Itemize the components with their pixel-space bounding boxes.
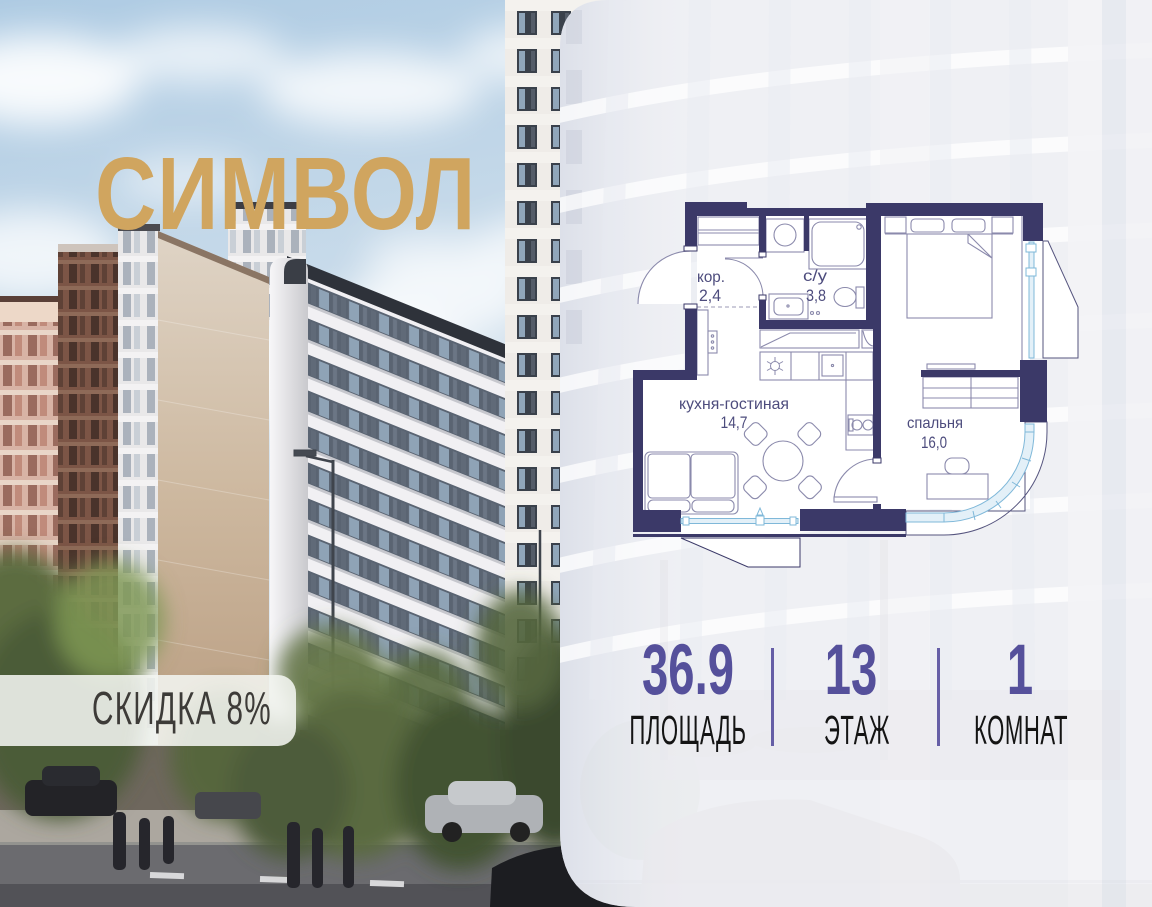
svg-text:14,7: 14,7 bbox=[721, 413, 748, 432]
svg-text:с/у: с/у bbox=[803, 268, 827, 285]
svg-text:2,4: 2,4 bbox=[699, 286, 721, 305]
svg-text:кор.: кор. bbox=[697, 269, 725, 286]
svg-text:спальня: спальня bbox=[907, 415, 963, 432]
svg-text:3,8: 3,8 bbox=[806, 286, 826, 305]
svg-text:кухня-гостиная: кухня-гостиная bbox=[679, 396, 789, 413]
svg-text:16,0: 16,0 bbox=[921, 433, 947, 452]
